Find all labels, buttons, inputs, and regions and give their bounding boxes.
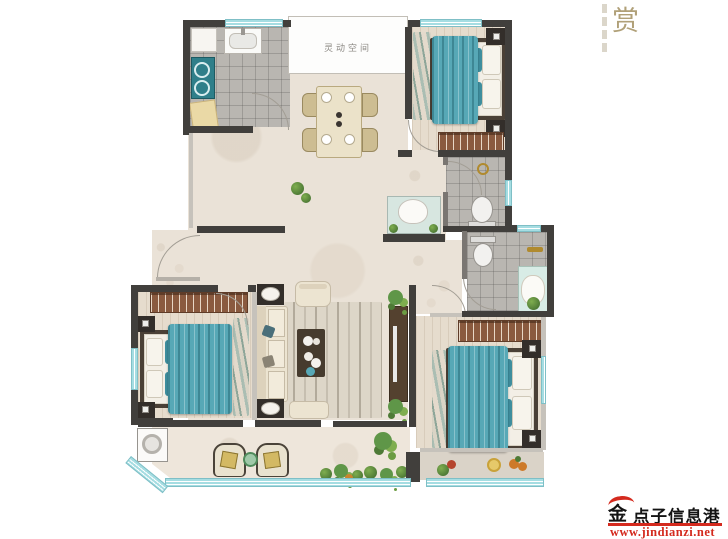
- wall: [443, 157, 448, 165]
- wall: [462, 311, 554, 317]
- nightstand-lamp-icon: [529, 345, 536, 352]
- title-character: 赏: [612, 8, 639, 35]
- chair-cushion: [263, 451, 281, 469]
- bed-pillow: [512, 396, 532, 430]
- chair-cushion: [220, 451, 239, 470]
- plate-icon: [321, 92, 332, 103]
- toilet: [473, 243, 493, 267]
- bed-pillow: [482, 45, 501, 75]
- nightstand-lamp-icon: [142, 406, 149, 413]
- entry-door-leaf: [156, 277, 200, 281]
- plate-icon: [344, 92, 355, 103]
- tv-console: [389, 306, 408, 402]
- wall: [189, 130, 193, 228]
- sofa-cushion: [268, 371, 285, 399]
- plate-icon: [321, 134, 332, 145]
- bed-pillow: [146, 338, 163, 366]
- watermark-logo: 金: [608, 505, 627, 524]
- wall: [398, 150, 412, 157]
- bowl-icon: [336, 121, 342, 127]
- dish-icon: [303, 336, 313, 346]
- plant-icon: [429, 224, 438, 233]
- dining-chair: [362, 128, 378, 152]
- burner-icon: [194, 62, 210, 78]
- wall: [383, 234, 445, 242]
- caption-mark: [602, 30, 607, 39]
- wall: [443, 226, 513, 232]
- window: [420, 19, 482, 27]
- balcony-window: [426, 478, 544, 487]
- wall: [462, 231, 467, 279]
- window: [131, 348, 138, 390]
- sink-basin: [229, 33, 257, 49]
- wall: [197, 226, 285, 233]
- wall: [252, 292, 257, 420]
- tv-screen: [393, 326, 397, 382]
- nightstand: [522, 340, 543, 358]
- bedroom-tr-decor: [413, 32, 431, 120]
- watermark: 金 点子信息港 www.jindianzi.net: [596, 494, 726, 538]
- wall: [283, 20, 291, 27]
- wall: [255, 420, 321, 427]
- caption-mark: [602, 17, 607, 26]
- fruit-icon: [518, 462, 527, 471]
- nightstand-lamp-icon: [142, 320, 149, 327]
- armchair-back: [299, 284, 327, 289]
- nightstand-lamp-icon: [493, 125, 500, 132]
- nightstand: [486, 28, 507, 45]
- bedroom-bl-decor: [233, 318, 249, 416]
- wall: [420, 448, 543, 452]
- nightstand-lamp-icon: [493, 33, 500, 40]
- wall: [505, 206, 512, 228]
- ceiling-lamp-icon: [477, 163, 489, 175]
- wall: [547, 225, 554, 317]
- wall: [408, 20, 420, 27]
- caption-mark: [602, 43, 607, 52]
- bed-tr-blanket: [432, 36, 478, 124]
- flex-space-label: 灵动空间: [288, 41, 408, 54]
- window: [505, 180, 512, 206]
- bed-pillow: [146, 370, 163, 398]
- dining-chair: [362, 93, 378, 117]
- plate-icon: [344, 134, 355, 145]
- nightstand: [137, 316, 155, 332]
- nightstand-lamp-icon: [529, 435, 536, 442]
- plant-icon: [527, 297, 540, 310]
- bed-bl-blanket: [168, 324, 232, 414]
- wall: [138, 420, 243, 427]
- faucet-icon: [241, 28, 245, 35]
- window: [541, 356, 546, 404]
- fruit-icon: [447, 460, 456, 469]
- balcony-window: [165, 478, 411, 487]
- plant-icon: [374, 432, 392, 450]
- balcony-table: [243, 452, 258, 467]
- wardrobe-br: [458, 320, 542, 342]
- plant-icon: [388, 399, 403, 414]
- towel-bar-icon: [527, 247, 543, 252]
- table-lamp-icon: [261, 287, 280, 301]
- window: [517, 225, 541, 232]
- floorplan-canvas: 灵动空间 赏 金 点子信息港 www.jindianzi.net: [0, 0, 728, 539]
- watermark-url: www.jindianzi.net: [610, 525, 715, 539]
- plant-icon: [388, 290, 403, 305]
- vanity-sink: [398, 199, 428, 224]
- caption-mark: [602, 4, 607, 13]
- plant-icon: [301, 193, 311, 203]
- wall: [505, 157, 512, 180]
- bed-pillow: [482, 79, 501, 109]
- wall: [248, 285, 256, 292]
- kitchen-cabinet: [191, 28, 217, 52]
- washer-drum-icon: [142, 434, 162, 454]
- dish-icon: [313, 338, 320, 345]
- toilet-tank: [470, 236, 496, 243]
- dish-icon: [306, 367, 315, 376]
- sofa-backrest: [257, 306, 266, 402]
- wall: [131, 285, 138, 348]
- bedroom-br-decor: [432, 350, 446, 448]
- ottoman: [289, 401, 329, 419]
- nightstand: [137, 402, 155, 418]
- plate-icon: [487, 458, 501, 472]
- wall: [505, 20, 512, 157]
- plant-icon: [389, 224, 398, 233]
- wall: [409, 285, 416, 427]
- burner-icon: [194, 80, 210, 96]
- wall: [183, 20, 190, 135]
- bed-br-blanket: [448, 346, 508, 452]
- wall: [333, 421, 407, 427]
- nightstand: [522, 430, 543, 448]
- bed-pillow: [512, 356, 532, 390]
- wall: [133, 285, 218, 292]
- wall: [438, 150, 512, 157]
- bowl-icon: [336, 112, 342, 118]
- table-lamp-icon: [261, 402, 280, 415]
- wall: [443, 192, 448, 230]
- wall: [183, 126, 253, 133]
- window: [225, 19, 283, 27]
- leaf-icon: [515, 456, 521, 462]
- toilet: [471, 196, 493, 223]
